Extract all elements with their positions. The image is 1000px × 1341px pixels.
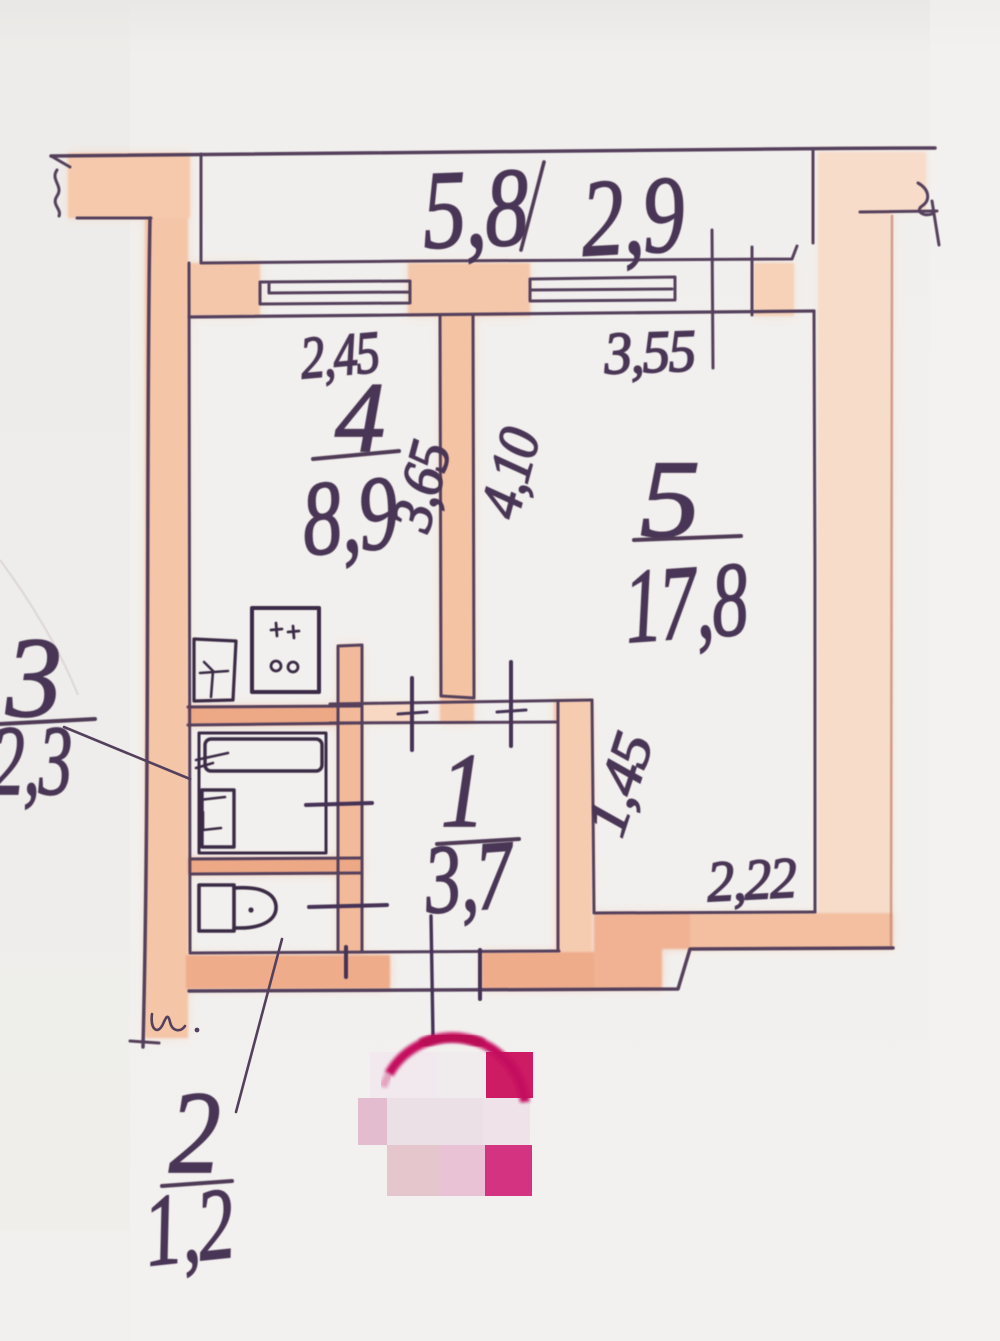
svg-text:2,22: 2,22 [705,845,797,915]
svg-text:5: 5 [640,438,698,560]
svg-text:17,8: 17,8 [621,540,752,665]
svg-text:3,55: 3,55 [602,317,696,386]
svg-text:3,7: 3,7 [420,821,518,935]
svg-text:5,8: 5,8 [421,145,530,273]
svg-text:1,2: 1,2 [139,1167,238,1289]
svg-text:2,9: 2,9 [578,152,687,279]
svg-text:2,3: 2,3 [0,705,71,816]
